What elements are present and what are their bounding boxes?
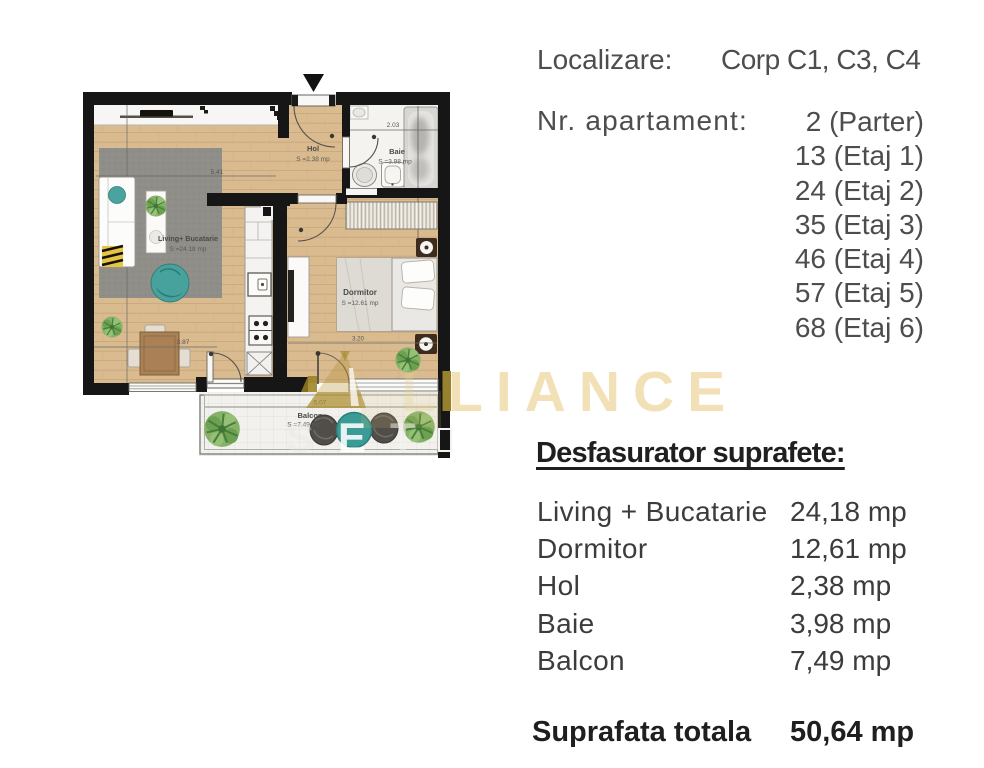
svg-text:S =2.38 mp: S =2.38 mp xyxy=(296,156,330,163)
svg-text:3.20: 3.20 xyxy=(352,337,364,343)
svg-text:T: T xyxy=(390,414,416,461)
svg-text:E: E xyxy=(338,414,366,461)
svg-text:Dormitor: Dormitor xyxy=(343,288,377,297)
svg-text:Hol: Hol xyxy=(307,144,319,153)
svg-text:5.41: 5.41 xyxy=(211,169,224,176)
svg-text:S =12.61 mp: S =12.61 mp xyxy=(341,300,378,307)
svg-text:2.03: 2.03 xyxy=(387,122,400,129)
svg-text:S =3.98 mp: S =3.98 mp xyxy=(378,159,412,166)
svg-text:Baie: Baie xyxy=(389,147,405,156)
svg-text:S =24.18 mp: S =24.18 mp xyxy=(169,246,206,253)
svg-text:S: S xyxy=(286,414,314,461)
svg-text:3.87: 3.87 xyxy=(177,339,190,346)
svg-text:LIANCE: LIANCE xyxy=(448,360,738,424)
svg-text:Living+ Bucatarie: Living+ Bucatarie xyxy=(158,234,218,243)
